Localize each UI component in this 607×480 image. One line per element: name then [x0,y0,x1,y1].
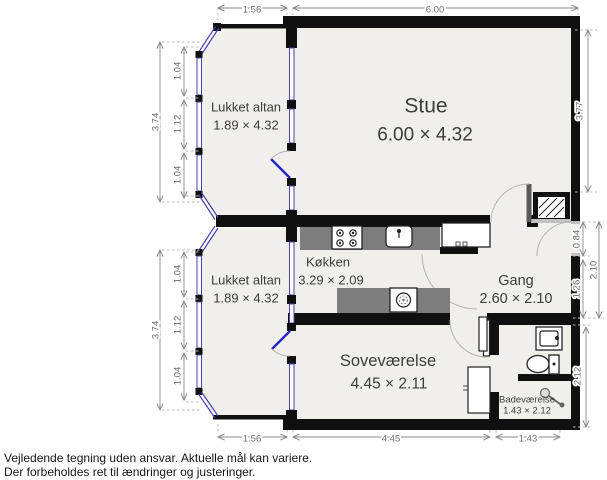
disclaimer: Vejledende tegning uden ansvar. Aktuelle… [4,451,312,479]
shaft-inner [538,197,565,218]
dim-label: 1.56 [243,5,262,16]
washer-icon [390,288,417,312]
floorplan-svg: 1.56 6.00 1.56 4.45 1.43 3.74 1.04 1.12 … [0,0,607,480]
floorplan-canvas: 1.56 6.00 1.56 4.45 1.43 3.74 1.04 1.12 … [0,0,607,480]
room-size-stue: 6.00 × 4.32 [377,125,473,146]
dim-label: 0.84 [572,230,583,249]
koekken-balcony-window [290,242,295,295]
balcony-window [197,256,202,295]
dim-label: 1.04 [173,265,184,284]
dim-label: 1.04 [173,367,184,386]
dim-label: 1.04 [173,62,184,81]
wall-badevaerelse-north [487,313,571,325]
room-size-lukket-altan-top: 1.89 × 4.32 [213,118,278,133]
dim-label: 1.56 [243,434,262,445]
dim-label: 1.12 [173,316,184,335]
shaft-hatch [538,197,565,218]
room-size-badevaerelse: 1.43 × 2.12 [503,406,551,417]
floor-bottom-balcony [200,228,290,417]
room-label-koekken: Køkken [306,255,350,270]
sovevaerelse-balcony-window [290,364,295,410]
dim-label: 6.00 [426,5,445,16]
wall-badevaerelse-stub [518,374,571,381]
badevaerelse-door-leaf [479,317,487,351]
dim-label: 3.77 [575,102,586,121]
stue-door-leaf [527,184,532,222]
room-label-sovevaerelse: Soveværelse [340,352,436,370]
wall-koekken-sovevaerelse [288,313,450,325]
dim-label: 4.45 [382,434,401,445]
room-size-gang: 2.60 × 2.10 [480,291,553,307]
bath-sink-icon [536,327,562,350]
room-size-sovevaerelse: 4.45 × 2.11 [351,376,428,393]
dim-label: 3.74 [151,113,162,132]
room-size-lukket-altan-bottom: 1.89 × 4.32 [213,291,278,306]
room-label-lukket-altan-top: Lukket altan [211,100,281,115]
kitchen-counter-top [300,227,440,250]
koekken-balcony-window [290,304,295,323]
dim-label: 1.43 [519,434,538,445]
fridge-box [442,223,490,247]
wall-top [283,16,580,28]
wall-koekken-gang-stub [440,247,478,254]
stue-balcony-window [290,186,295,210]
dim-label: 1.04 [173,166,184,185]
balcony-window [197,58,202,95]
stove-icon [332,226,362,249]
dim-label: 3.74 [151,321,162,340]
wall-bottom [283,419,580,430]
disclaimer-line1: Vejledende tegning uden ansvar. Aktuelle… [4,451,312,465]
balcony-window [197,102,202,148]
dim-label: 1.26 [572,280,583,299]
room-label-lukket-altan-bottom: Lukket altan [211,273,281,288]
balcony-window [197,155,202,191]
room-label-badevaerelse: Badeværelse [499,395,555,406]
balcony-window [197,355,202,388]
stue-balcony-window [290,48,295,100]
room-label-stue: Stue [404,95,447,118]
entry-sill-top [571,221,580,224]
wall-badevaerelse-west-upper [489,325,499,355]
dim-label: 2.10 [589,261,600,280]
disclaimer-line2: Der forbeholdes ret til ændringer og jus… [4,465,255,479]
room-label-gang: Gang [498,273,533,289]
balcony-window [197,302,202,348]
dim-label: 1.12 [173,115,184,134]
wall-top-balcony-top [213,24,290,29]
stue-balcony-window [290,109,295,143]
sink-icon [386,226,412,247]
wall-bottom-balcony-bottom [213,415,290,420]
dim-label: 2.12 [573,367,584,386]
room-size-koekken: 3.29 × 2.09 [298,273,363,288]
toilet-icon [527,355,559,374]
